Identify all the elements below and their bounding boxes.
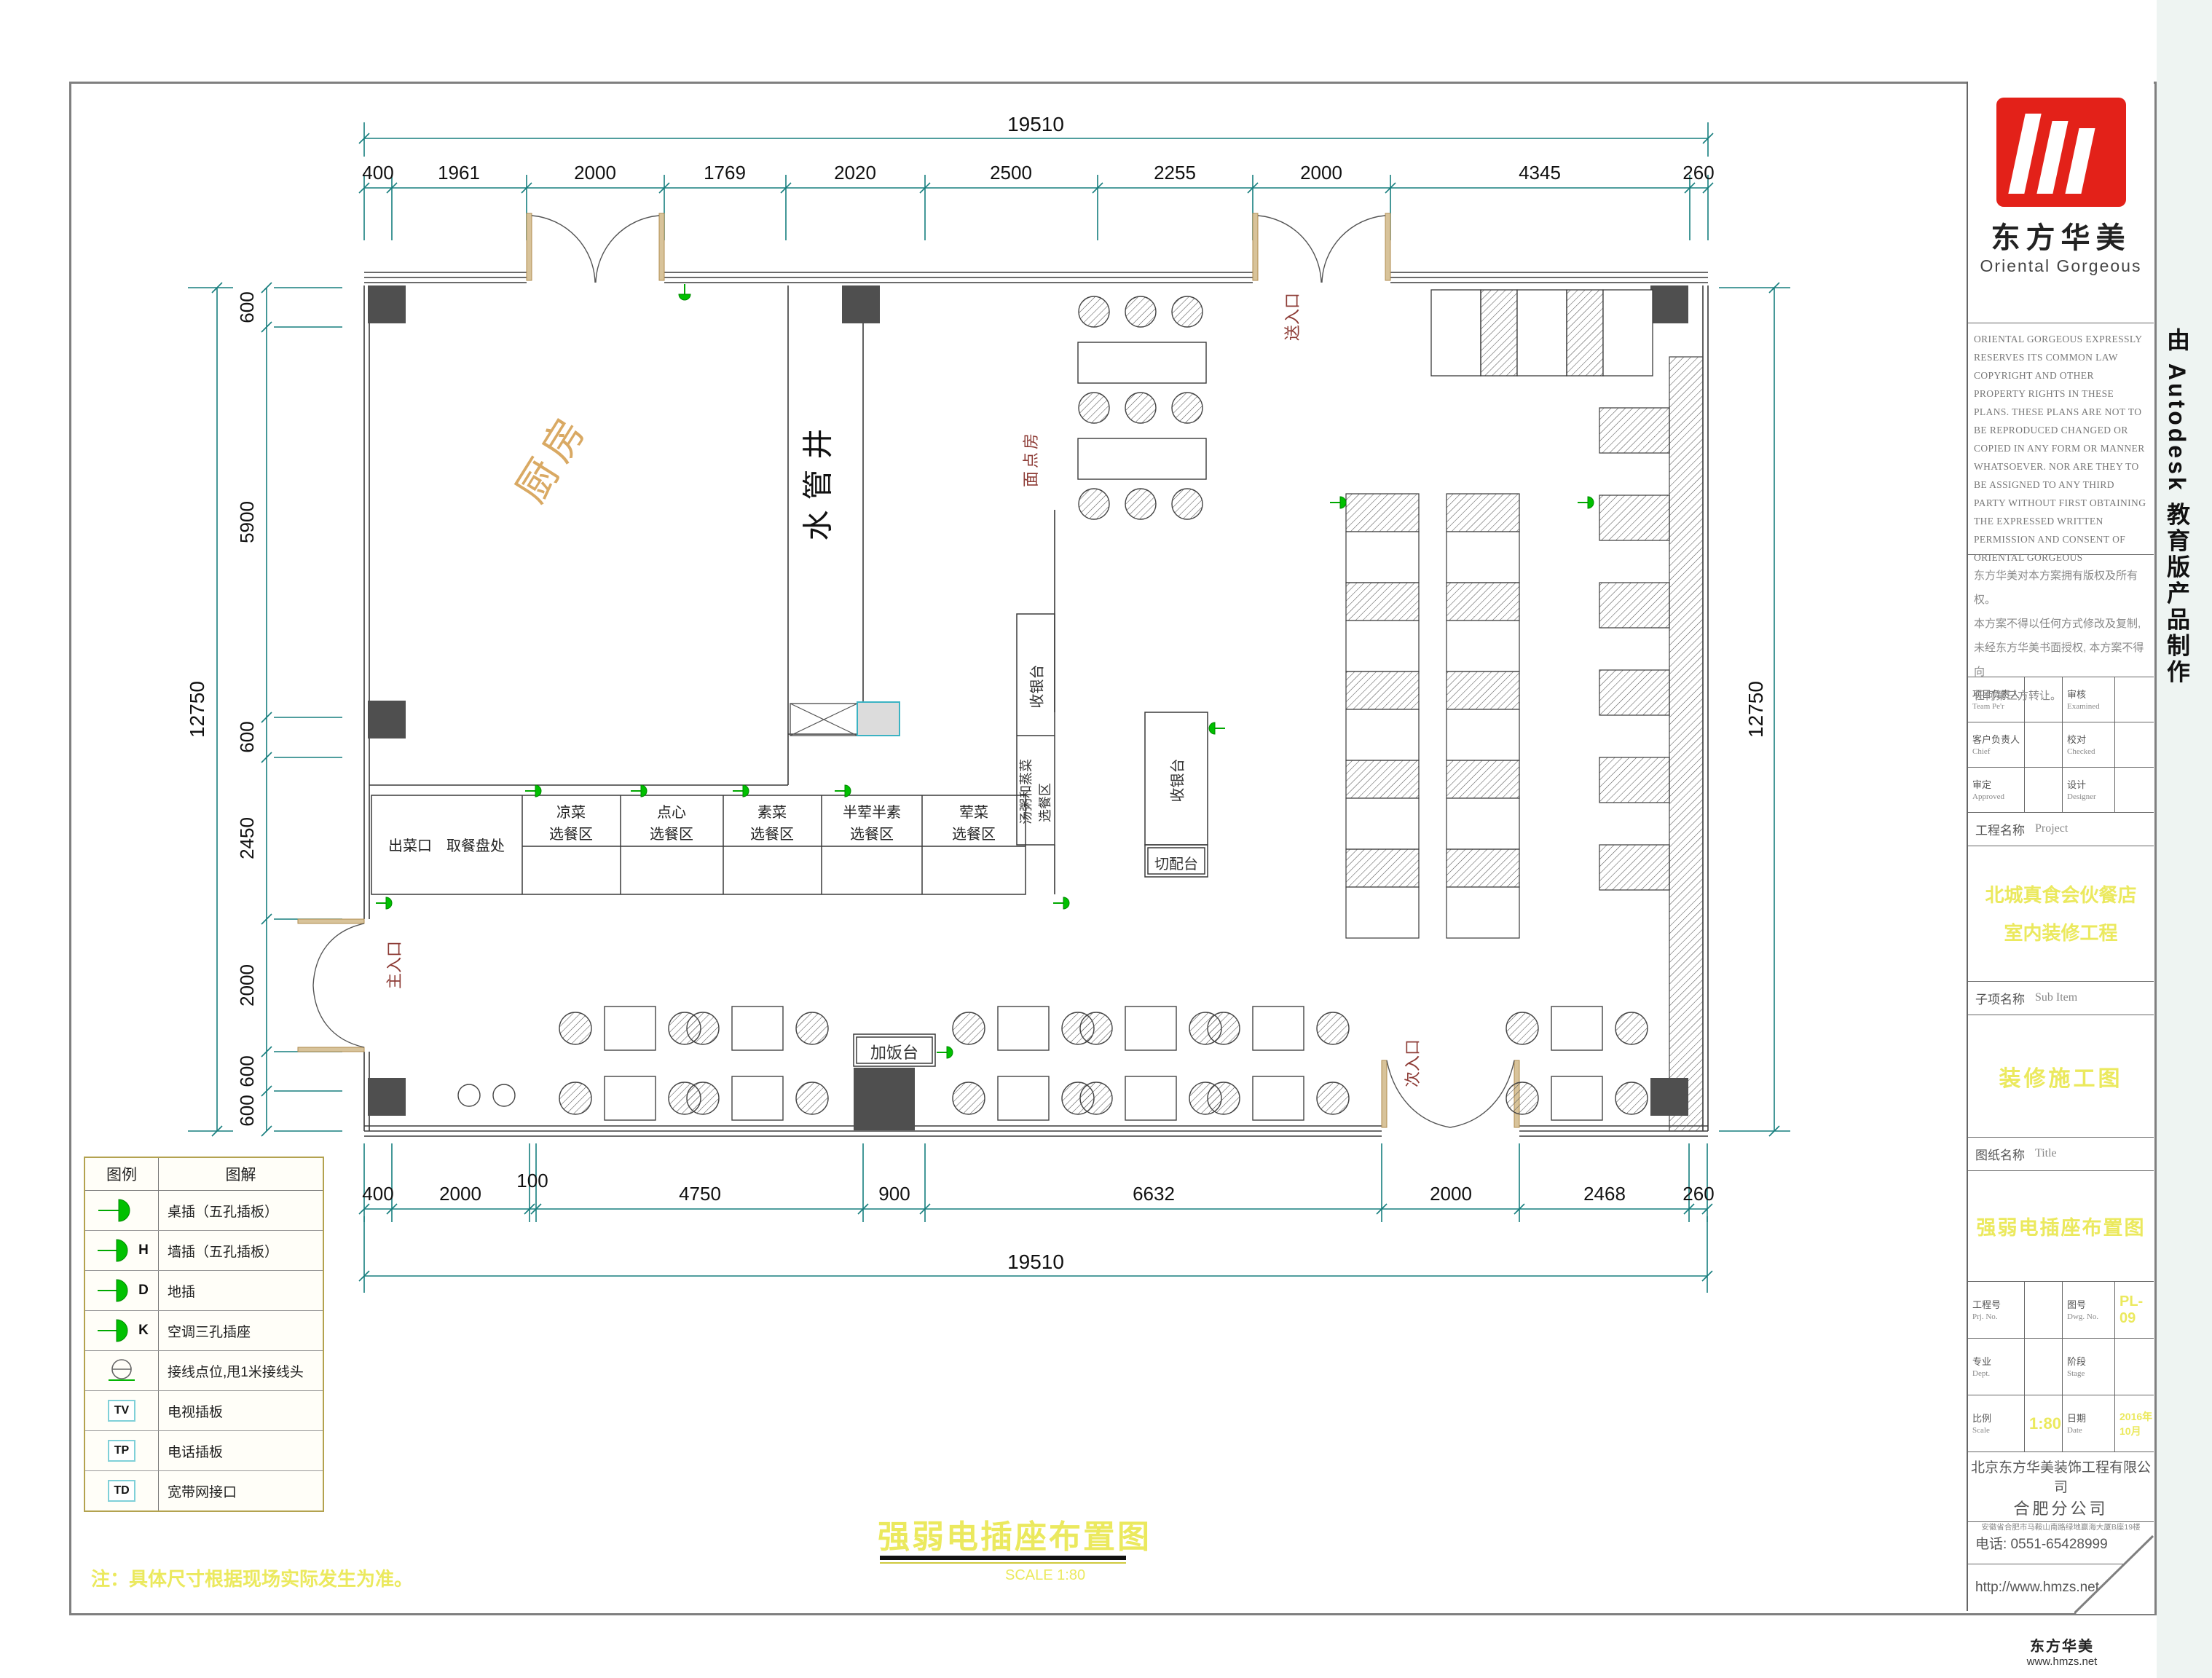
desk-socket-icon [85,1191,159,1230]
svg-text:900: 900 [878,1183,910,1205]
copyright-cn: 东方华美对本方案拥有版权及所有权。 本方案不得以任何方式修改及复制, 未经东方华… [1968,555,2154,677]
svg-text:选餐区: 选餐区 [850,826,894,843]
entrance-label-service: 送入口 [1280,280,1303,353]
svg-text:600: 600 [236,721,258,752]
soup-area-label-2: 选餐区 [1035,770,1054,835]
watermark-name: 东方华美 [2000,1634,2124,1655]
door-main-entrance [298,919,364,1052]
dim-left-total: 12750 [186,681,208,738]
wall-socket-icon: H [85,1231,159,1270]
sheet-main-title: 强弱电插座布置图 [878,1510,1152,1557]
door-top-left [527,213,664,283]
aircon-socket-icon: K [85,1311,159,1350]
staff-value [2115,722,2154,767]
svg-text:400: 400 [362,162,393,184]
legend-header-desc: 图解 [159,1163,323,1185]
svg-text:5900: 5900 [236,501,258,543]
serving-out-label: 出菜口 取餐盘处 [388,838,505,854]
prep-counter-label: 切配台 [1145,852,1208,873]
project-label-row: 工程名称 Project [1968,813,2154,846]
svg-text:凉菜: 凉菜 [556,804,586,821]
svg-text:400: 400 [362,1183,393,1205]
svg-text:2000: 2000 [574,162,616,184]
svg-text:600: 600 [236,1055,258,1087]
logo-area: 东方华美 Oriental Gorgeous [1968,82,2154,323]
subitem-name: 装修施工图 [1968,1015,2154,1138]
copyright-en: ORIENTAL GORGEOUS EXPRESSLY RESERVES ITS… [1968,323,2154,555]
corner-cut [2074,1532,2156,1615]
svg-text:选餐区: 选餐区 [750,826,794,843]
svg-text:100: 100 [516,1170,548,1191]
watermark-site: www.hmzs.net [2000,1655,2124,1668]
legend-row: TP 电话插板 [85,1431,323,1471]
rice-counter-label: 加饭台 [857,1040,932,1063]
svg-text:素菜: 素菜 [757,804,787,821]
round-tables-top [1078,296,1206,519]
legend-row: H 墙插（五孔插板） [85,1231,323,1271]
svg-text:600: 600 [236,291,258,323]
plug-icon [937,1047,953,1058]
dim-right-total: 12750 [1744,681,1767,738]
entrance-label-secondary: 次入口 [1400,1027,1423,1100]
cashier-box-label: 收银台 [1166,744,1187,817]
svg-text:2468: 2468 [1583,1183,1626,1205]
shaft-fixtures [790,702,900,736]
legend-row: TV 电视插板 [85,1391,323,1431]
soup-area-label-1: 汤粥和蒸菜 [1016,733,1035,850]
svg-text:260: 260 [1682,1183,1714,1205]
plug-icon [376,897,392,909]
staff-value [2115,768,2154,812]
booth-band-top [1431,290,1653,376]
svg-text:260: 260 [1682,162,1714,184]
company-logo [1996,98,2126,207]
legend-row: K 空调三孔插座 [85,1311,323,1351]
company-block: 北京东方华美装饰工程有限公司 合肥分公司 安徽省合肥市马鞍山南路绿地赢海大厦B座… [1968,1452,2154,1522]
sheet-note: 注：具体尺寸根据现场实际发生为准。 [91,1564,413,1591]
door-service [1253,213,1390,283]
banquette-columns [1346,408,1669,938]
logo-cn: 东方华美 [1991,214,2131,256]
watermark: 东方华美 www.hmzs.net [2000,1634,2124,1668]
floor-socket-icon: D [85,1271,159,1310]
plug-icon [1330,497,1346,508]
autodesk-banner: 由 Autodesk 教育版产品制作 [2160,328,2194,1275]
staff-value [2025,722,2063,767]
meta-grid: 工程号Prj. No. 图号Dwg. No. PL-09 专业Dept. 阶段S… [1968,1282,2154,1452]
svg-text:600: 600 [236,1095,258,1126]
title-label-row: 图纸名称 Title [1968,1138,2154,1171]
hatched-wall [1669,357,1703,1131]
sheet-scale-note: SCALE 1:80 [1005,1567,1085,1584]
svg-text:2000: 2000 [1430,1183,1472,1205]
logo-en: Oriental Gorgeous [1980,256,2142,276]
legend-row: 桌插（五孔插板） [85,1191,323,1231]
svg-text:6632: 6632 [1133,1183,1175,1205]
plug-icon [1578,497,1594,508]
svg-text:4750: 4750 [679,1183,721,1205]
svg-text:2020: 2020 [834,162,876,184]
legend-row: TD 宽带网接口 [85,1471,323,1510]
legend-row: D 地插 [85,1271,323,1311]
svg-text:选餐区: 选餐区 [650,826,693,843]
svg-text:1961: 1961 [438,162,480,184]
drawing-title: 强弱电插座布置图 [1968,1171,2154,1282]
tv-socket-icon: TV [85,1391,159,1430]
cashier-column-label: 收银台 [1026,654,1047,720]
svg-text:2000: 2000 [439,1183,481,1205]
svg-text:2255: 2255 [1154,162,1196,184]
title-underline-2 [880,1562,1126,1564]
svg-text:2500: 2500 [990,162,1032,184]
plug-icon [1053,897,1069,909]
svg-text:2000: 2000 [236,964,258,1007]
floor-plan: 19510 400 1961 2000 1769 2020 2500 2255 … [0,0,2212,1678]
entrance-label-main: 主入口 [382,929,405,1001]
legend-row: 接线点位,甩1米接线头 [85,1351,323,1391]
svg-text:点心: 点心 [657,804,686,821]
svg-text:荤菜: 荤菜 [959,804,988,821]
dining-tables-bottom [458,1007,1648,1120]
dim-top-total: 19510 [1007,113,1064,135]
broadband-socket-icon: TD [85,1471,159,1510]
project-name: 北城真食会伙餐店 室内装修工程 [1968,846,2154,982]
junction-point-icon [85,1351,159,1390]
staff-value [2025,768,2063,812]
phone-socket-icon: TP [85,1431,159,1470]
svg-text:2450: 2450 [236,817,258,859]
plug-icon [679,284,690,300]
subitem-label-row: 子项名称 Sub Item [1968,982,2154,1015]
svg-text:4345: 4345 [1519,162,1561,184]
drawing-sheet: 19510 400 1961 2000 1769 2020 2500 2255 … [0,0,2212,1678]
title-block: 东方华美 Oriental Gorgeous ORIENTAL GORGEOUS… [1967,82,2154,1611]
legend-header-symbol: 图例 [85,1158,159,1190]
svg-text:1769: 1769 [704,162,746,184]
svg-text:选餐区: 选餐区 [549,826,593,843]
dim-bottom-total: 19510 [1007,1250,1064,1273]
plug-icon [1209,722,1225,734]
title-underline [880,1556,1126,1560]
room-label-water-shaft: 水管井 [794,393,838,567]
legend: 图例 图解 桌插（五孔插板） H 墙插（五孔插板） D 地插 [84,1157,324,1512]
room-label-pastry: 面点房 [1018,419,1042,499]
svg-text:半荤半素: 半荤半素 [843,804,901,821]
svg-text:2000: 2000 [1300,162,1342,184]
svg-text:选餐区: 选餐区 [952,826,996,843]
